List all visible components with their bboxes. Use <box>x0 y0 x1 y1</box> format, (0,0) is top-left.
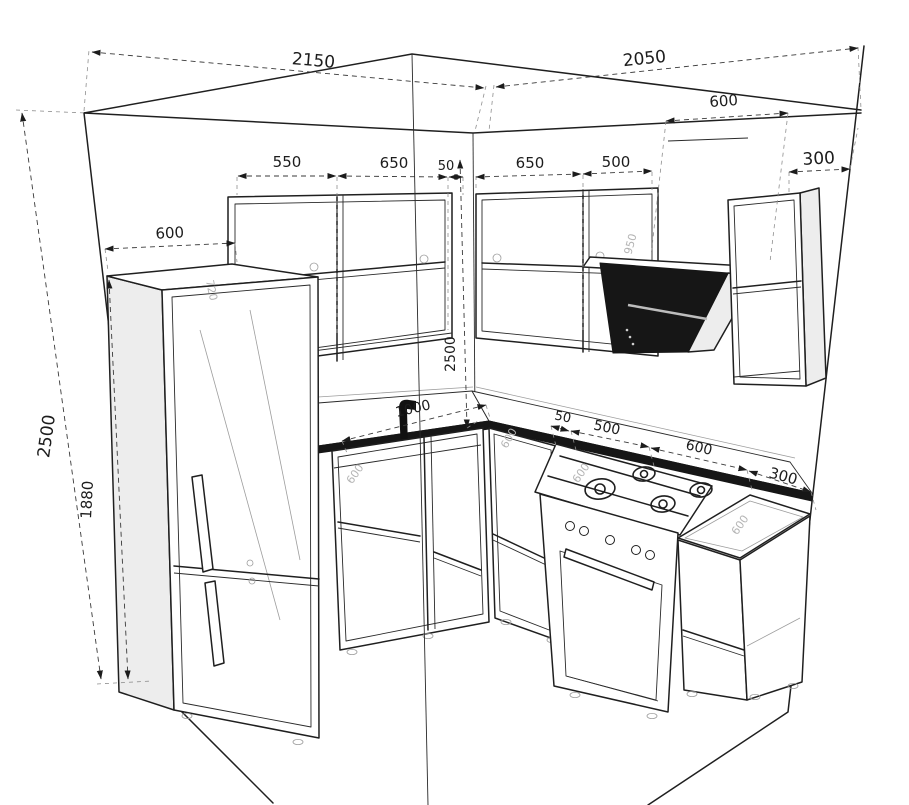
right-cab-front <box>678 540 747 700</box>
hood-button-icon <box>632 343 635 346</box>
dim-label-650-left: 650 <box>380 154 409 172</box>
dim-label-2150: 2150 <box>291 49 336 73</box>
hood-button-icon <box>626 329 629 332</box>
kitchen-drawing-canvas: 2150 2050 2500 1880 600 550 650 50 650 5… <box>0 0 909 805</box>
dim-label-500-right: 500 <box>602 153 631 171</box>
hood-button-icon <box>629 336 632 339</box>
upper-right-open-cabinet <box>728 188 826 386</box>
base-left-carcass <box>332 428 489 650</box>
dim-label-650-right: 650 <box>516 154 545 172</box>
dim-label-600-hood: 600 <box>709 91 739 111</box>
refrigerator <box>107 264 319 745</box>
dim-label-50-upper: 50 <box>438 159 455 174</box>
dim-label-300-upper: 300 <box>802 148 835 170</box>
dim-label-1880: 1880 <box>77 480 97 519</box>
dim-label-2500-corner: 2500 <box>443 336 459 372</box>
dim-label-550: 550 <box>273 153 302 171</box>
fridge-front <box>162 277 319 738</box>
kitchen-3d-line-drawing: 2150 2050 2500 1880 600 550 650 50 650 5… <box>0 0 909 805</box>
dim-label-600-fridge: 600 <box>155 223 185 242</box>
